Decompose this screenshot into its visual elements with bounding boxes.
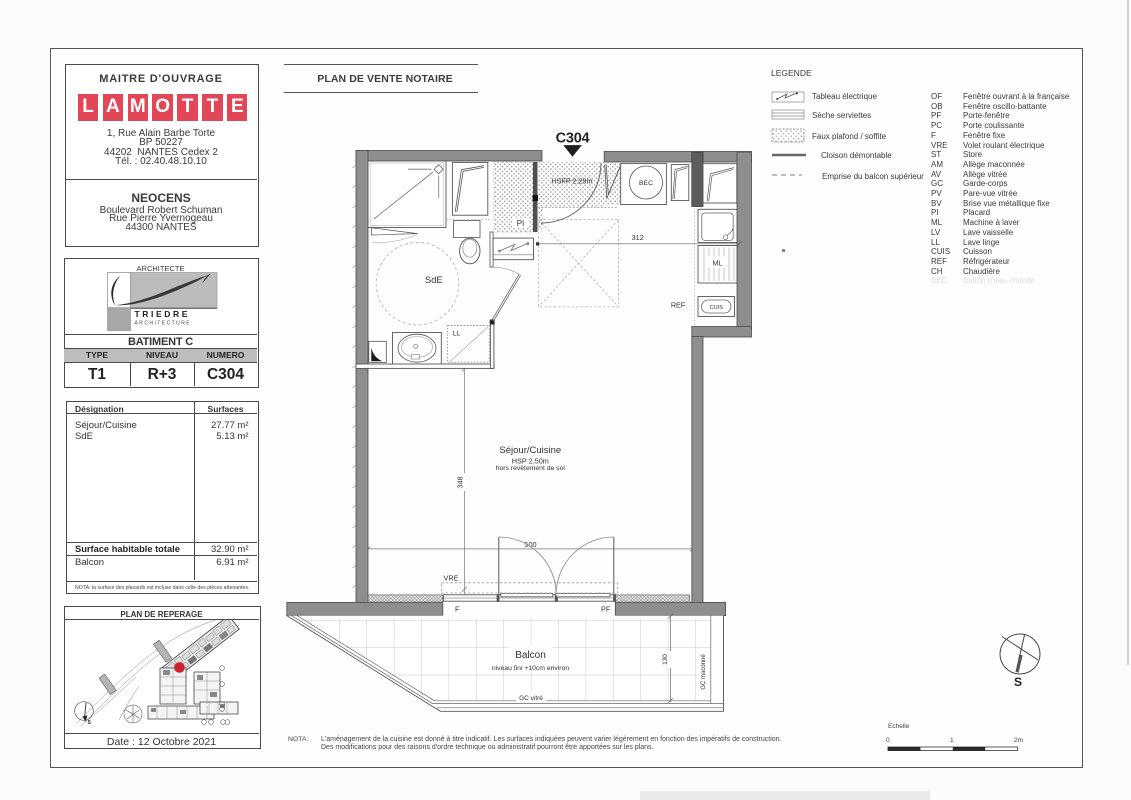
svg-text:S: S xyxy=(1014,675,1022,689)
svg-text:GC maconné: GC maconné xyxy=(701,654,707,690)
svg-text:130: 130 xyxy=(662,654,669,665)
svg-text:1: 1 xyxy=(950,737,954,744)
svg-text:F: F xyxy=(455,605,460,614)
svg-text:niveau fini +10cm environ: niveau fini +10cm environ xyxy=(492,665,569,672)
svg-text:348: 348 xyxy=(455,476,464,488)
svg-text:VRE: VRE xyxy=(444,574,459,583)
svg-text:LL: LL xyxy=(453,331,461,338)
svg-text:BEC: BEC xyxy=(639,180,653,187)
svg-text:PI: PI xyxy=(517,219,525,228)
svg-text:0: 0 xyxy=(886,737,890,744)
svg-text:CUIS: CUIS xyxy=(710,305,724,311)
svg-text:Séjour/Cuisine: Séjour/Cuisine xyxy=(499,445,561,456)
svg-text:GC vitré: GC vitré xyxy=(519,695,543,702)
svg-text:C304: C304 xyxy=(556,131,590,147)
svg-text:312: 312 xyxy=(632,233,644,242)
svg-text:ML: ML xyxy=(713,258,723,267)
svg-text:SdE: SdE xyxy=(425,275,443,286)
svg-text:PF: PF xyxy=(601,605,611,614)
svg-text:REF: REF xyxy=(671,301,686,310)
svg-text:Balcon: Balcon xyxy=(515,650,546,661)
svg-text:500: 500 xyxy=(524,540,536,549)
svg-text:HSP 2.50m: HSP 2.50m xyxy=(512,456,549,465)
svg-text:hors revêtement de sol: hors revêtement de sol xyxy=(496,465,566,472)
svg-text:2m: 2m xyxy=(1014,737,1023,744)
